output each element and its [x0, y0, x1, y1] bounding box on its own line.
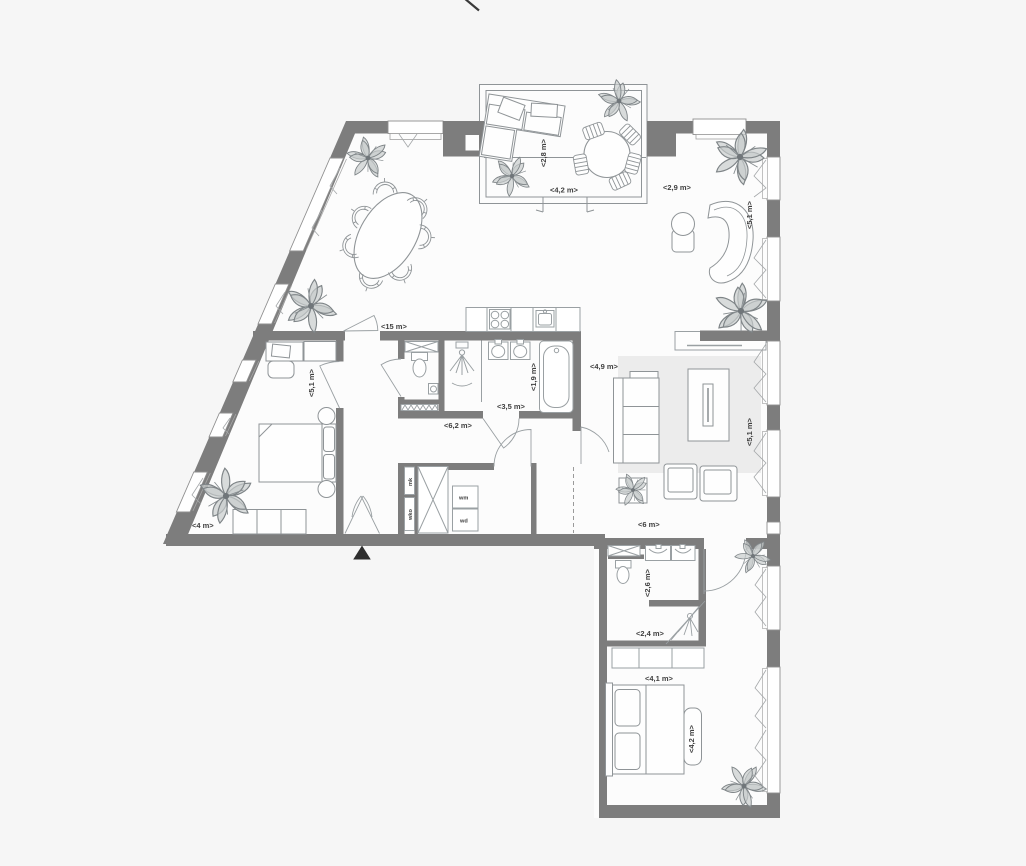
svg-text:<2,4 m>: <2,4 m>: [636, 629, 665, 638]
svg-text:<5,1 m>: <5,1 m>: [745, 200, 754, 229]
svg-text:<6,2 m>: <6,2 m>: [444, 421, 473, 430]
svg-text:<4,2 m>: <4,2 m>: [550, 186, 579, 195]
svg-text:<5,1 m>: <5,1 m>: [745, 417, 754, 446]
svg-text:wko: wko: [408, 509, 414, 521]
svg-text:<2,8 m>: <2,8 m>: [539, 138, 548, 167]
svg-text:wm: wm: [458, 496, 468, 502]
svg-text:<4,2 m>: <4,2 m>: [687, 724, 696, 753]
svg-text:<4,1 m>: <4,1 m>: [645, 674, 674, 683]
svg-text:<2,9 m>: <2,9 m>: [663, 183, 692, 192]
svg-text:mk: mk: [408, 477, 414, 486]
svg-text:wd: wd: [459, 519, 468, 525]
svg-text:<4,9 m>: <4,9 m>: [590, 362, 619, 371]
svg-text:<6 m>: <6 m>: [638, 520, 660, 529]
svg-text:<4 m>: <4 m>: [192, 521, 214, 530]
svg-text:<3,5 m>: <3,5 m>: [497, 402, 526, 411]
svg-text:<15 m>: <15 m>: [381, 322, 407, 331]
svg-text:<2,6 m>: <2,6 m>: [643, 568, 652, 597]
svg-text:<5,1 m>: <5,1 m>: [307, 368, 316, 397]
svg-text:<1,9 m>: <1,9 m>: [529, 362, 538, 391]
